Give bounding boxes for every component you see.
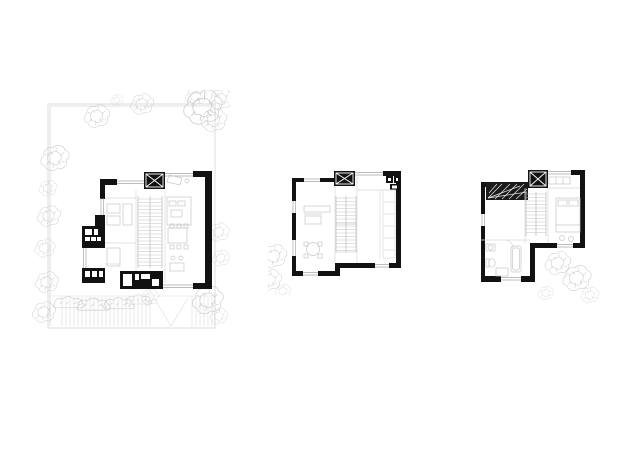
middle-floor-plan: [268, 165, 408, 295]
walls: [292, 171, 401, 276]
tree: [210, 308, 228, 324]
kitchen-core-southwest: [82, 268, 105, 283]
central-stair: [526, 192, 546, 236]
tree: [35, 239, 56, 257]
tree: [209, 90, 230, 109]
tree: [35, 272, 58, 293]
core-square-x: [144, 172, 165, 189]
tree: [41, 145, 69, 170]
drawing-canvas: [0, 0, 640, 452]
core-square-x: [528, 170, 548, 188]
tree: [538, 286, 553, 300]
central-stair: [138, 196, 162, 268]
outside-vegetation: [538, 252, 599, 303]
core-square-x: [334, 171, 355, 186]
kitchen-core-west: [82, 226, 105, 243]
site-boundary: [48, 104, 215, 328]
tree: [37, 206, 60, 227]
tree: [184, 90, 223, 124]
tree: [268, 245, 287, 268]
outside-vegetation: [268, 245, 291, 295]
dark-hatched-roof-area: [486, 182, 528, 200]
furniture: [304, 206, 330, 258]
bathroom-fixtures: [486, 244, 521, 276]
tree: [275, 284, 290, 295]
bedroom-furniture: [549, 177, 580, 242]
tree: [84, 105, 110, 128]
tree: [563, 265, 591, 290]
upper-floor-plan: [473, 158, 603, 305]
tree: [581, 287, 599, 303]
furniture: [107, 175, 191, 271]
central-stair: [336, 196, 356, 252]
kitchen-core-south: [120, 271, 163, 289]
tree: [268, 270, 282, 291]
site-ground-floor-plan: [30, 90, 230, 342]
tree: [32, 302, 55, 323]
kitchen-appliance-blocks: [386, 176, 400, 190]
